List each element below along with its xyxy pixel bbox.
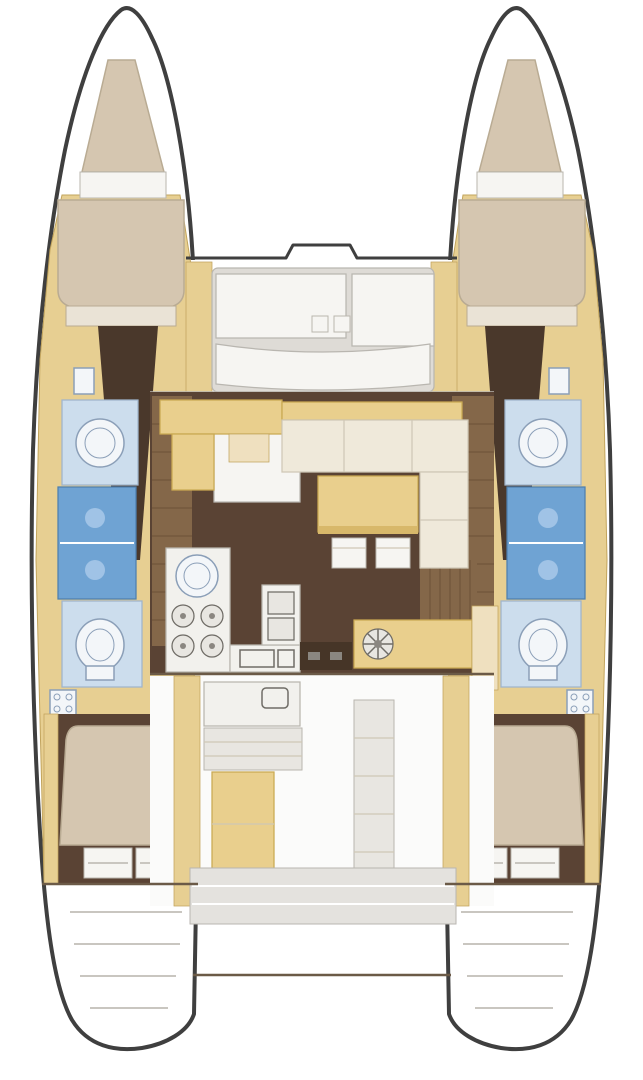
starboard-shower-drain-icon <box>538 560 558 580</box>
port-forward-bed-pillows <box>66 306 176 326</box>
port-toilet-icon <box>76 619 124 671</box>
port-sink-icon <box>76 419 124 467</box>
port-shower-drain-icon <box>85 560 105 580</box>
fridge-icon <box>268 592 294 614</box>
starboard-aft-shelf-right <box>585 714 599 884</box>
starboard-toilet-tank <box>529 666 557 680</box>
foredeck-side-deck-port <box>186 262 212 392</box>
starboard-shower-drain-icon <box>538 508 558 528</box>
settee-backrest <box>282 402 462 420</box>
salon-stool <box>376 538 410 568</box>
cockpit-bench-starboard <box>354 700 394 890</box>
starboard-sink-icon <box>519 419 567 467</box>
starboard-bathroom <box>501 400 585 687</box>
starboard-forward-bed-pillows <box>467 306 577 326</box>
port-toilet-tank <box>86 666 114 680</box>
helm-wheel-icon <box>363 629 393 659</box>
catamaran-floorplan <box>0 0 643 1080</box>
salon-stool <box>332 538 366 568</box>
port-shower-drain-icon <box>85 508 105 528</box>
port-locker-icon <box>74 368 94 394</box>
salon-table <box>318 476 418 532</box>
galley-sink-icon <box>176 555 218 597</box>
cockpit-bench-port <box>204 728 302 770</box>
floorplan-drawing <box>0 0 643 1080</box>
port-washer-icon <box>50 690 76 716</box>
starboard-bow-shelf <box>477 172 563 198</box>
stove-knob-panel <box>300 642 352 670</box>
starboard-washer-icon <box>567 690 593 716</box>
starboard-toilet-icon <box>519 619 567 671</box>
starboard-forward-bed <box>459 200 585 308</box>
forward-cockpit-panel-right <box>352 274 434 346</box>
port-aft-shelf-left <box>44 714 58 884</box>
salon-table-edge <box>318 526 418 534</box>
cockpit-table <box>212 772 274 874</box>
forward-crossbeam <box>186 245 457 258</box>
settee-seat <box>282 420 468 472</box>
forward-counter <box>160 400 300 502</box>
foredeck-hatch-icon <box>334 316 350 332</box>
port-bow-shelf <box>80 172 166 198</box>
port-bathroom <box>58 400 142 687</box>
oven-icon <box>268 618 294 640</box>
salon <box>150 392 498 690</box>
foredeck-side-deck-starboard <box>431 262 457 392</box>
port-forward-bed <box>58 200 184 308</box>
cockpit-cabinet <box>204 682 300 726</box>
foredeck-hatch-icon <box>312 316 328 332</box>
starboard-locker-icon <box>549 368 569 394</box>
